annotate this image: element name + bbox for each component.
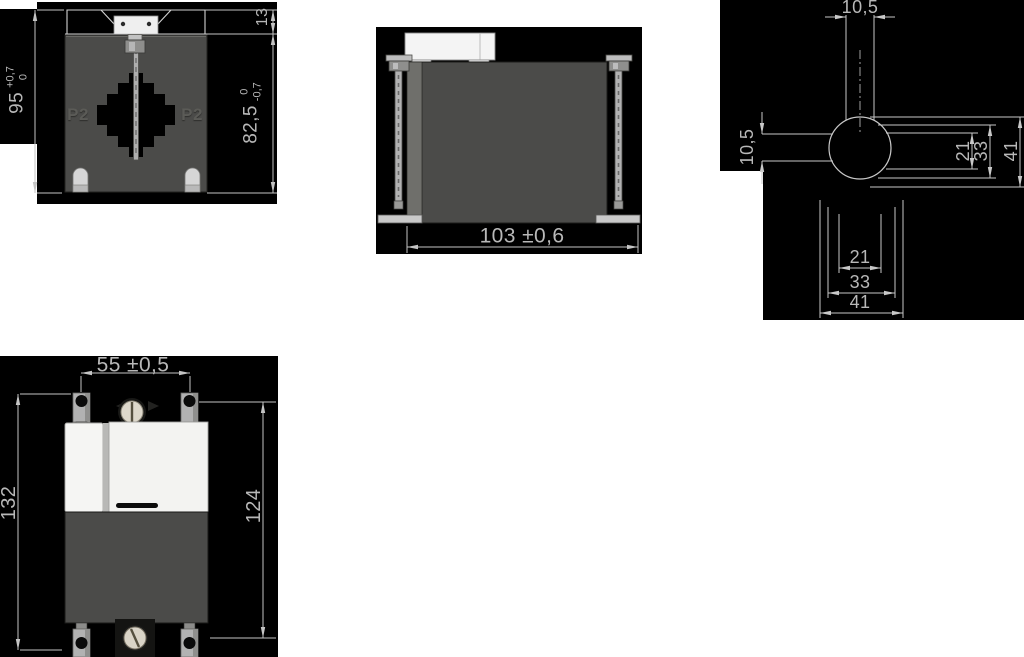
front-view-panel: 95 +0,7 0 13 82,5 0 -0,7 P2 P2 — [0, 0, 277, 205]
terminal-block — [405, 33, 495, 64]
dim-overall-length: 132 — [0, 486, 19, 521]
terminal-label-p2-left: P2 — [67, 105, 89, 125]
housing-top-view — [65, 422, 208, 623]
dim-terminal-spacing: 55 ±0,5 — [97, 355, 170, 376]
top-view-panel: 55 ±0,5 132 124 — [0, 356, 278, 657]
dim-slot-width-left: 10,5 — [738, 129, 756, 166]
dim-overall-height: 95 +0,7 0 — [4, 66, 29, 114]
dim-right-41: 41 — [1002, 141, 1020, 162]
dim-bottom-33: 33 — [850, 273, 871, 291]
hole-detail-panel: 10,5 10,5 21 33 41 21 33 41 — [720, 0, 1024, 320]
front-view-drawing — [0, 0, 277, 205]
drawing-canvas: 95 +0,7 0 13 82,5 0 -0,7 P2 P2 — [0, 0, 1024, 657]
dim-slot-width-top: 10,5 — [842, 0, 879, 16]
dim-bracket-height: 13 — [255, 8, 271, 27]
clamp-screw-bottom — [115, 619, 155, 657]
transformer-body-side — [407, 62, 607, 223]
terminal-label-p2-right: P2 — [181, 105, 203, 125]
dim-right-33: 33 — [972, 141, 990, 162]
dim-bottom-21: 21 — [850, 248, 871, 266]
dim-bottom-41: 41 — [850, 293, 871, 311]
dim-body-height: 82,5 0 -0,7 — [238, 82, 263, 144]
dim-overall-width: 103 ±0,6 — [480, 226, 565, 247]
side-view-panel: 103 ±0,6 — [376, 27, 642, 254]
side-view-drawing — [376, 27, 642, 254]
dim-body-length: 124 — [244, 489, 264, 524]
top-view-drawing — [0, 356, 278, 657]
dim-right-21: 21 — [954, 141, 972, 162]
